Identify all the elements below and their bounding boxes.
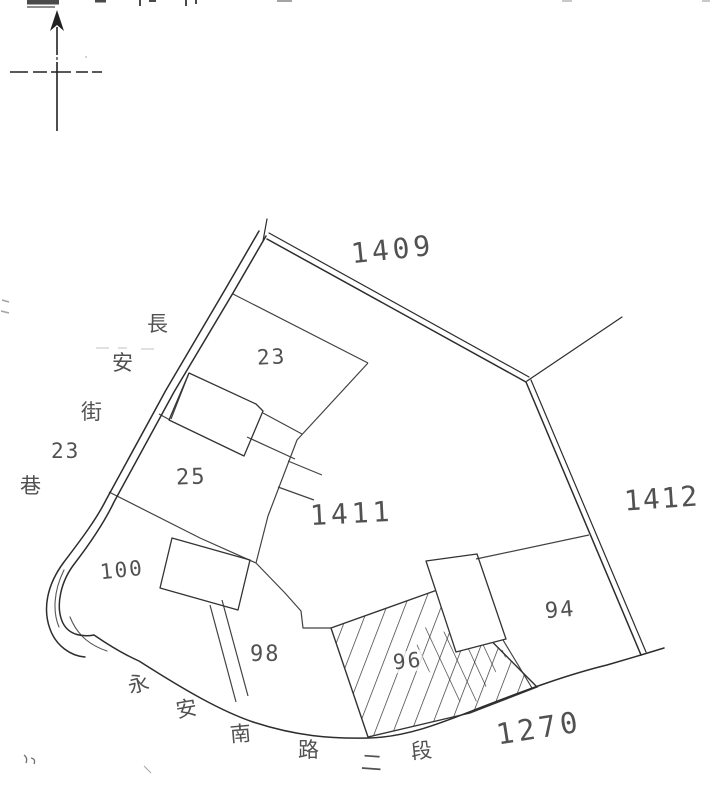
block-label-1409: 1409 bbox=[350, 232, 436, 269]
parcel-label-25: 25 bbox=[176, 466, 207, 489]
parcel-label-100: 100 bbox=[99, 558, 145, 583]
building-parcel-98 bbox=[160, 538, 250, 610]
street-bottom-name-char: 安 bbox=[174, 697, 198, 721]
street-left-name-char: 巷 bbox=[20, 476, 41, 497]
street-bottom-name-char: 二 bbox=[360, 752, 382, 774]
alley-lines-98 bbox=[210, 600, 248, 702]
parcel-94-north-line bbox=[476, 535, 589, 559]
parcel-label-23: 23 bbox=[256, 346, 286, 369]
building-parcel-23 bbox=[169, 373, 263, 456]
street-bottom-name-char: 段 bbox=[410, 740, 433, 763]
street-bottom-name-char: 路 bbox=[298, 740, 319, 761]
parcel-label-96: 96 bbox=[391, 649, 424, 673]
strip-back-boundary bbox=[256, 363, 368, 628]
street-left-name-char: 街 bbox=[81, 402, 102, 423]
alley-lines-2 bbox=[278, 461, 322, 500]
parcel-23-north-line bbox=[233, 294, 368, 363]
street-left-name-char: 長 bbox=[147, 314, 168, 335]
cadastral-map-page: 1409 1411 1412 1270 23 25 100 98 96 94 長… bbox=[0, 0, 720, 795]
street-left-name-char: 安 bbox=[112, 353, 133, 374]
parcel-label-98: 98 bbox=[250, 644, 281, 666]
street-bottom-name-char: 南 bbox=[229, 723, 252, 746]
branch-line-northeast bbox=[527, 317, 622, 381]
map-drawing bbox=[0, 0, 720, 795]
parcel-label-94: 94 bbox=[544, 599, 576, 624]
street-left-name-number: 23 bbox=[51, 441, 80, 462]
north-arrow-icon bbox=[10, 10, 102, 131]
block-label-1411: 1411 bbox=[309, 498, 394, 530]
parcel-96-hatched-region bbox=[331, 589, 537, 737]
street-1412-inner bbox=[526, 382, 641, 655]
block-label-1412: 1412 bbox=[623, 482, 700, 515]
